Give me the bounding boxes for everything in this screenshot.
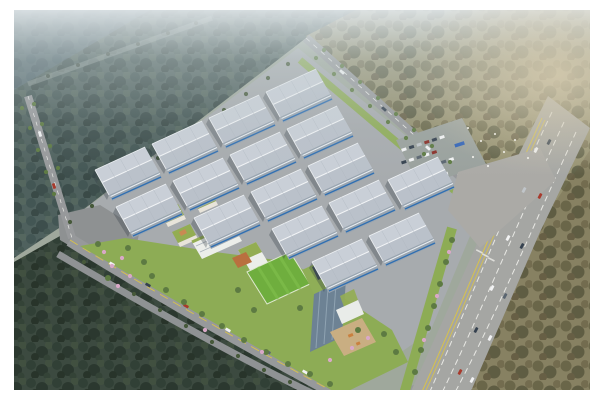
screenshot-root [0, 0, 600, 400]
aerial-rendering-image [0, 0, 600, 400]
